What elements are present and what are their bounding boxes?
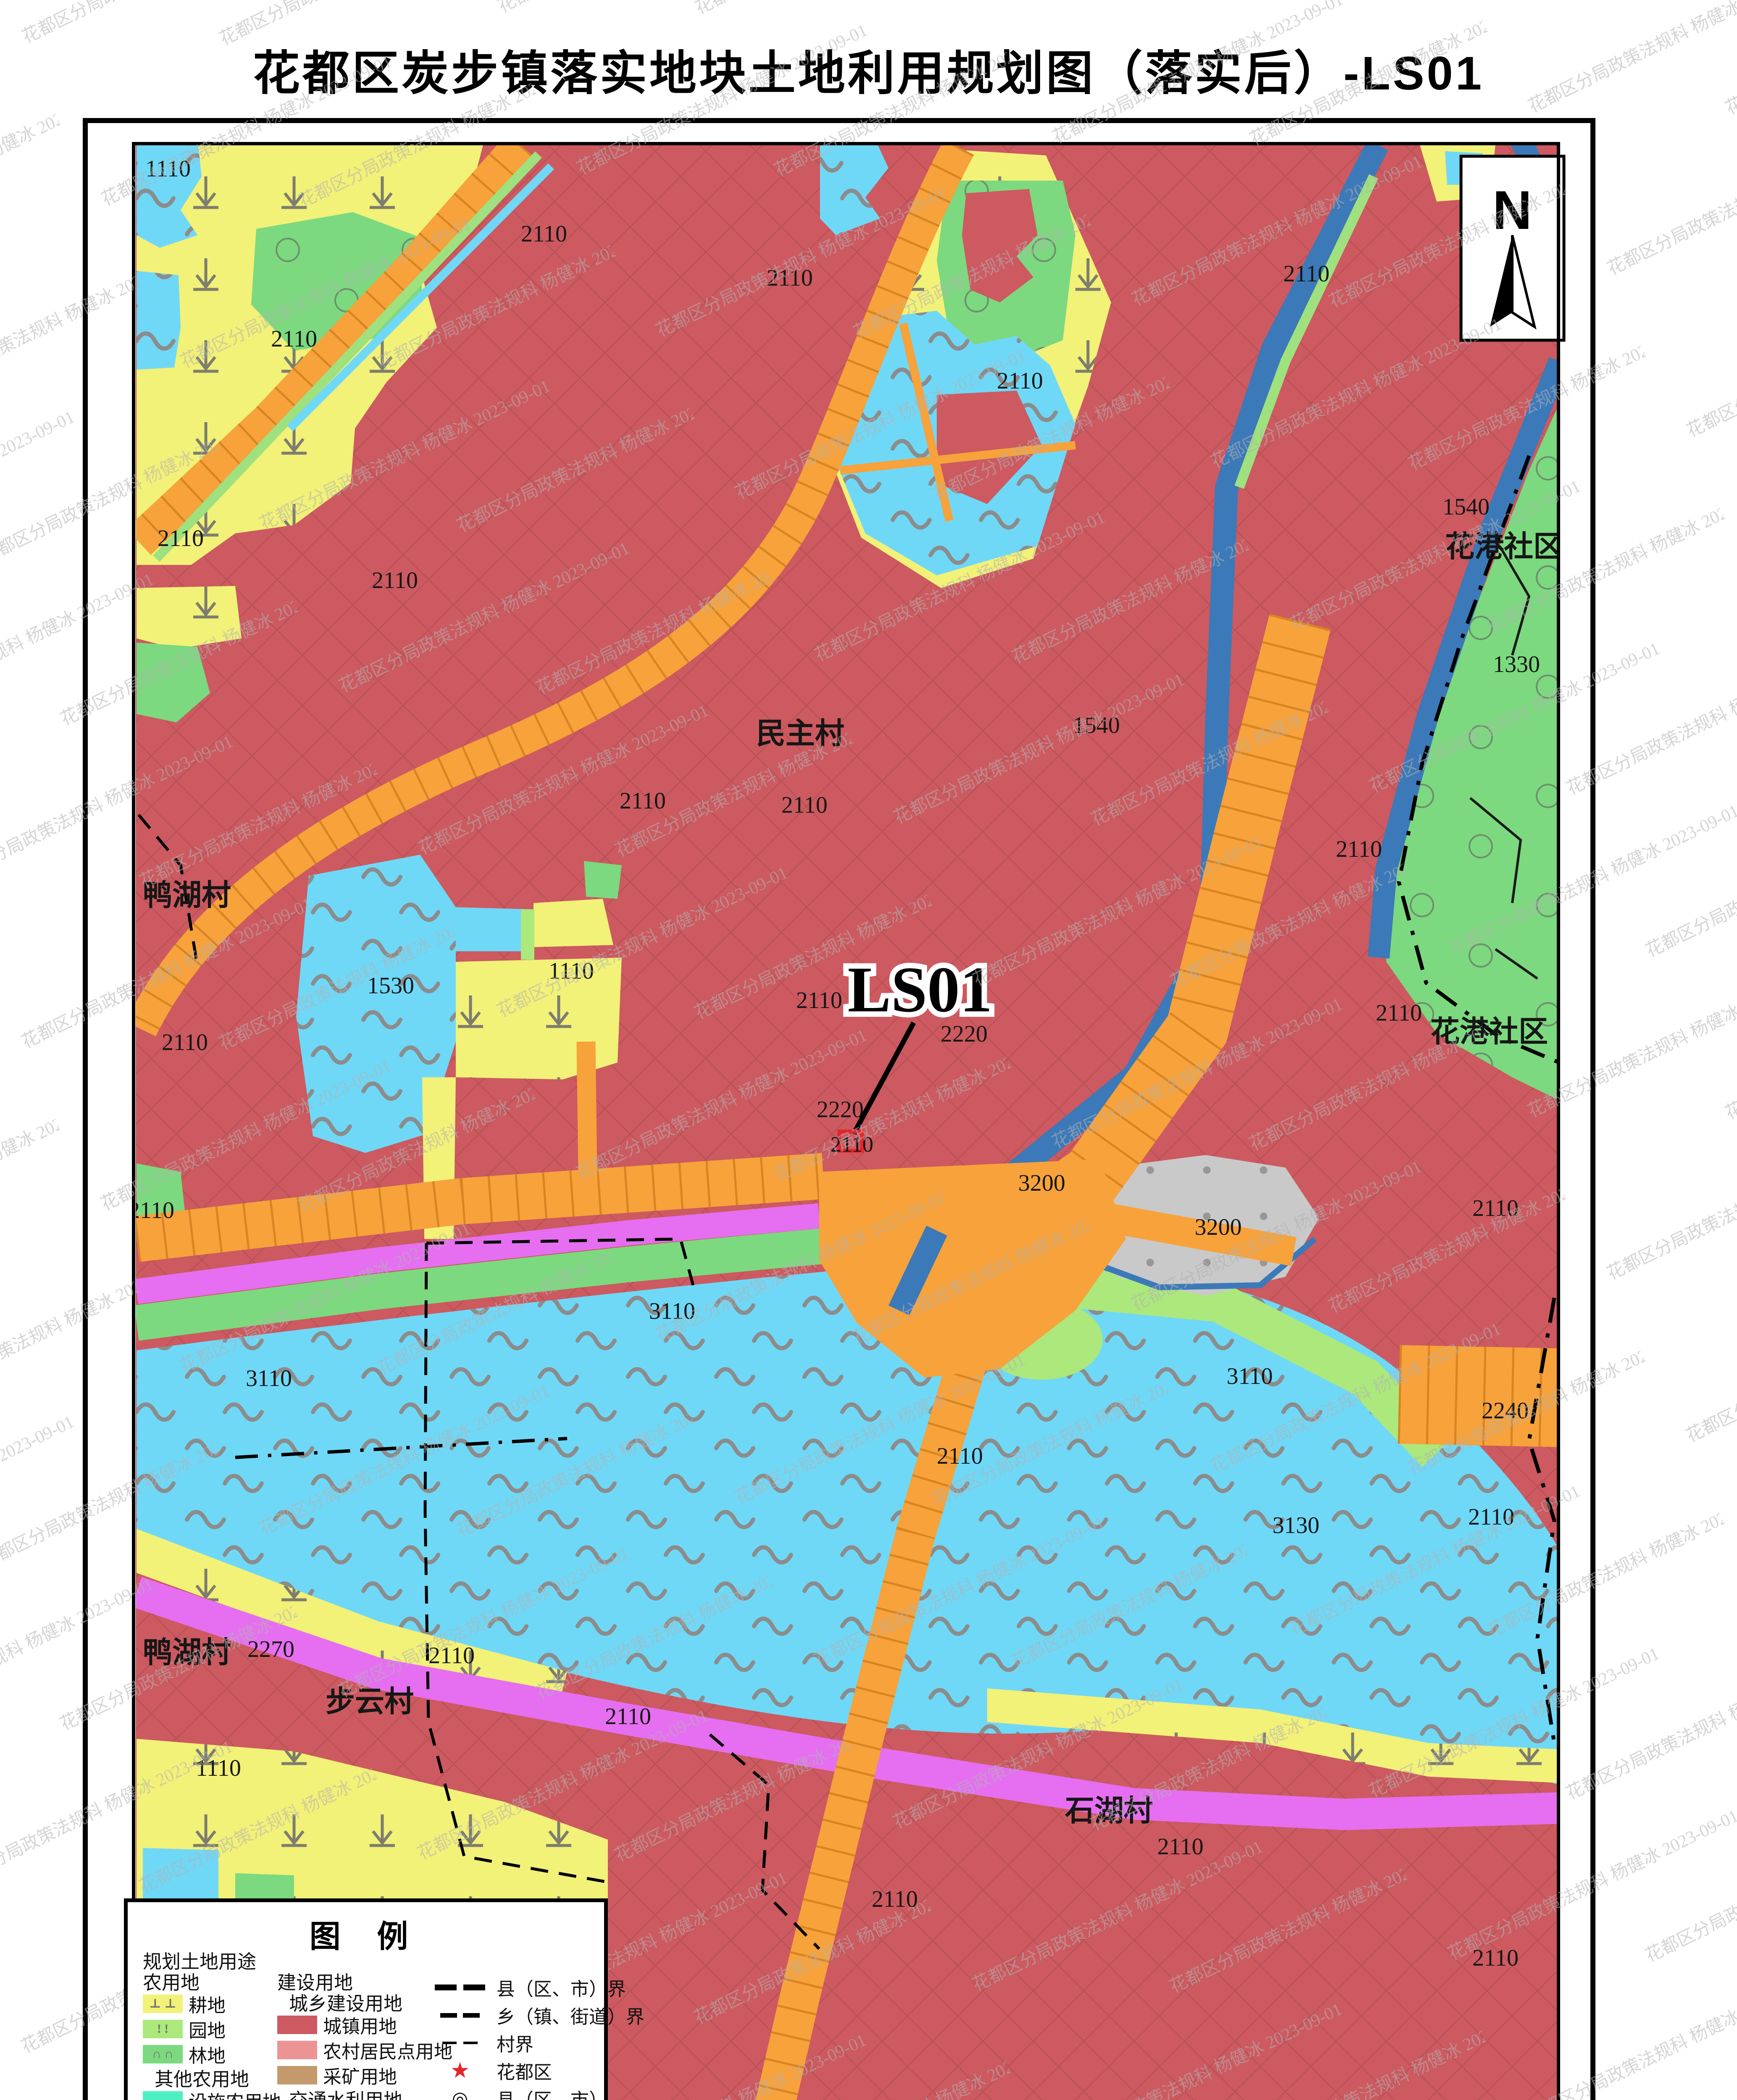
legend-swatch: [277, 2066, 317, 2084]
map-canvas: 花都区分局政策法规科 杨健冰 2023-09-01 花都区分局政策法规科 杨健冰…: [0, 0, 1737, 2100]
legend-swatch-symbol: ∩ ∩: [152, 2048, 173, 2061]
legend-mark-label: 村界: [497, 2029, 533, 2056]
star-icon: ★: [450, 2058, 470, 2083]
legend-column-landuse: 规划土地用途农用地⊥ ⊥耕地! !园地∩ ∩林地其他农用地设施农用地农村道路∼∼…: [143, 1949, 281, 2100]
legend-label: 耕地: [189, 1990, 226, 2017]
legend-label: 园地: [189, 2016, 226, 2042]
legend-mark-symbol-dash-village: [428, 2042, 491, 2044]
legend-mark-symbol-double-circle: ◎: [428, 2088, 491, 2100]
legend-mark-row: 县（区、市）界: [428, 1974, 605, 2001]
legend-header-row: 交通水利用地: [277, 2088, 420, 2100]
boundary-dash: [463, 2013, 480, 2018]
legend-item-row: 采矿用地: [277, 2063, 420, 2088]
legend-mark-row: 村界: [428, 2029, 605, 2057]
boundary-dash: [442, 2042, 457, 2044]
legend-swatch: [143, 2091, 183, 2100]
legend-item-row: 设施农用地: [143, 2088, 281, 2100]
boundary-dash: [463, 1984, 485, 1990]
legend-mark-label: 乡（镇、街道）界: [497, 2002, 644, 2029]
legend-mark-row: 乡（镇、街道）界: [428, 2001, 605, 2029]
sheet: { "page": { "title": "花都区炭步镇落实地块土地利用规划图（…: [0, 0, 1737, 2100]
legend-mark-row: ★花都区: [428, 2057, 605, 2084]
legend-mark-label: 花都区: [497, 2057, 552, 2084]
legend-column-construction: 建设用地城乡建设用地城镇用地农村居民点用地采矿用地交通水利用地铁路用地公路用地∼…: [277, 1970, 420, 2100]
legend-item-row: ∩ ∩林地: [143, 2042, 281, 2067]
legend-header-row: 城乡建设用地: [277, 1991, 420, 2012]
legend-mark-symbol-dash-county: [428, 1984, 491, 1990]
legend-swatch: ⊥ ⊥: [143, 1995, 183, 2013]
legend-mark-symbol-star: ★: [428, 2058, 491, 2083]
legend-header: 交通水利用地: [277, 2085, 402, 2100]
legend-mark-row: ◎县（区、市）: [428, 2084, 605, 2100]
legend-swatch: ∩ ∩: [143, 2045, 183, 2063]
legend-mark-label: 县（区、市）: [497, 2085, 607, 2100]
legend-swatch-symbol: ! !: [157, 2023, 168, 2035]
boundary-dash: [463, 2042, 478, 2044]
legend-box: 图 例 规划土地用途农用地⊥ ⊥耕地! !园地∩ ∩林地其他农用地设施农用地农村…: [124, 1898, 608, 2100]
legend-mark-label: 县（区、市）界: [497, 1974, 626, 2001]
legend-swatch: ! !: [143, 2020, 183, 2038]
boundary-dash: [440, 2013, 457, 2018]
double-circle-icon: ◎: [452, 2088, 468, 2100]
legend-item-row: ! !园地: [143, 2016, 281, 2042]
legend-item-row: 农村居民点用地: [277, 2037, 420, 2063]
legend-header-row: 农用地: [143, 1970, 281, 1991]
legend-column-marks: 县（区、市）界乡（镇、街道）界村界★花都区◎县（区、市）⊙乡（镇、街道）LS01…: [428, 1974, 605, 2100]
legend-item-row: 城镇用地: [277, 2012, 420, 2037]
legend-label: 设施农用地: [189, 2087, 281, 2100]
legend-header-row: 其他农用地: [143, 2067, 281, 2088]
legend-mark-symbol-dash-town: [428, 2013, 491, 2018]
boundary-dash: [435, 1984, 457, 1990]
watermark-layer: [0, 0, 1737, 2100]
legend-swatch: [277, 2041, 317, 2059]
legend-label: 城镇用地: [323, 2011, 397, 2038]
legend-swatch-symbol: ⊥ ⊥: [149, 1998, 176, 2010]
legend-item-row: ⊥ ⊥耕地: [143, 1991, 281, 2016]
legend-swatch: [277, 2016, 317, 2034]
